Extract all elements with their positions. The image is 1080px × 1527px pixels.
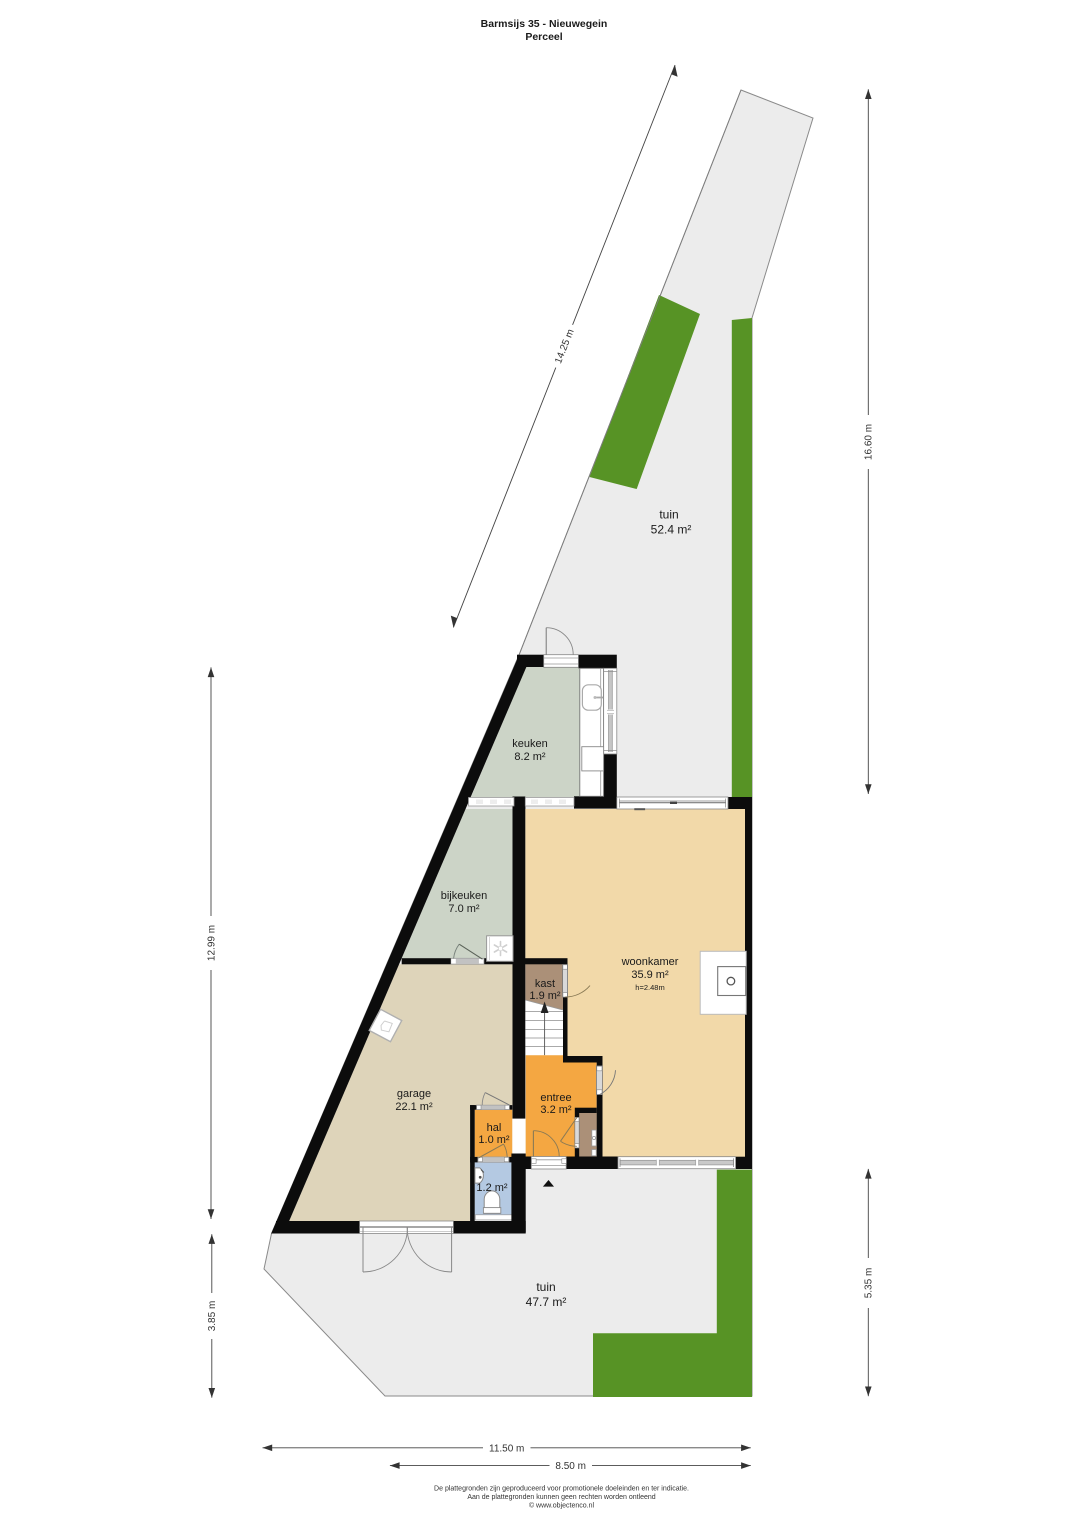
- svg-text:22.1 m²: 22.1 m²: [395, 1101, 433, 1113]
- svg-text:De plattegronden zijn geproduc: De plattegronden zijn geproduceerd voor …: [434, 1486, 689, 1493]
- svg-text:11.50 m: 11.50 m: [489, 1443, 524, 1454]
- svg-text:hal: hal: [487, 1122, 502, 1134]
- svg-text:16.60 m: 16.60 m: [864, 424, 875, 460]
- svg-text:tuin: tuin: [659, 508, 678, 522]
- svg-text:35.9 m²: 35.9 m²: [631, 969, 669, 981]
- svg-text:keuken: keuken: [512, 738, 547, 750]
- svg-text:3.2 m²: 3.2 m²: [540, 1104, 572, 1116]
- svg-text:1.2 m²: 1.2 m²: [476, 1182, 508, 1194]
- svg-text:kast: kast: [535, 978, 555, 990]
- svg-text:1.0 m²: 1.0 m²: [478, 1134, 510, 1146]
- svg-text:bijkeuken: bijkeuken: [441, 890, 487, 902]
- svg-text:1.9 m²: 1.9 m²: [529, 990, 561, 1002]
- svg-text:h=2.48m: h=2.48m: [635, 983, 664, 992]
- svg-text:14.25 m: 14.25 m: [553, 328, 576, 366]
- svg-text:5.35 m: 5.35 m: [864, 1268, 875, 1299]
- svg-text:12.99 m: 12.99 m: [206, 925, 217, 961]
- svg-text:Perceel: Perceel: [525, 31, 562, 43]
- svg-text:tuin: tuin: [536, 1280, 555, 1294]
- svg-text:woonkamer: woonkamer: [621, 956, 679, 968]
- svg-text:3.85 m: 3.85 m: [207, 1301, 218, 1332]
- svg-text:entree: entree: [540, 1092, 571, 1104]
- svg-text:52.4 m²: 52.4 m²: [651, 523, 692, 537]
- svg-text:8.50 m: 8.50 m: [555, 1461, 586, 1472]
- svg-text:7.0 m²: 7.0 m²: [448, 903, 480, 915]
- svg-text:Barmsijs 35 - Nieuwegein: Barmsijs 35 - Nieuwegein: [481, 18, 608, 30]
- svg-text:garage: garage: [397, 1088, 431, 1100]
- svg-text:47.7 m²: 47.7 m²: [526, 1295, 567, 1309]
- svg-text:© www.objectenco.nl: © www.objectenco.nl: [529, 1502, 595, 1510]
- svg-text:Aan de plattegronden kunnen ge: Aan de plattegronden kunnen geen rechten…: [467, 1494, 655, 1501]
- svg-text:8.2 m²: 8.2 m²: [514, 751, 546, 763]
